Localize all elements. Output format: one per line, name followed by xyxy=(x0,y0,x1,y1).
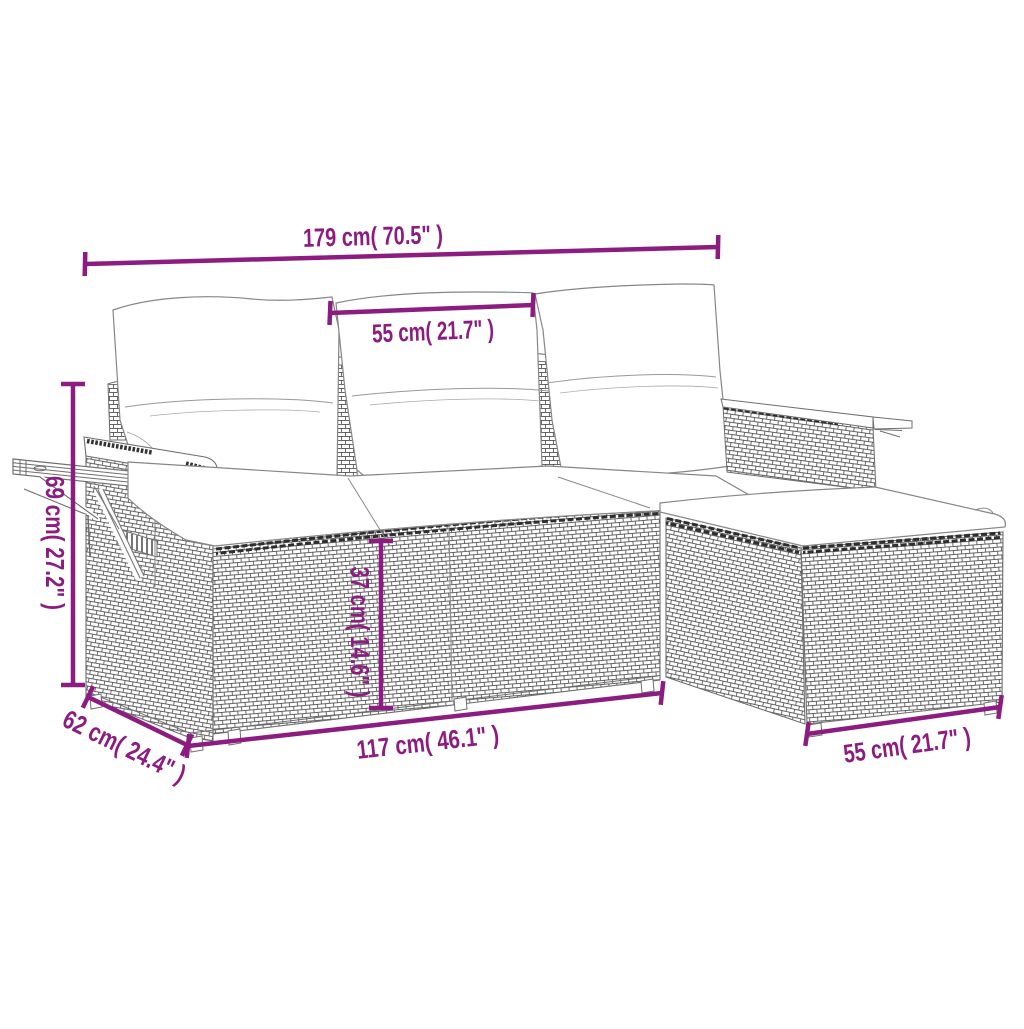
svg-text:55 cm( 21.7" ): 55 cm( 21.7" ) xyxy=(371,314,494,349)
svg-text:179 cm( 70.5" ): 179 cm( 70.5" ) xyxy=(303,219,444,253)
svg-text:37 cm( 14.6" ): 37 cm( 14.6" ) xyxy=(345,567,375,698)
svg-text:69 cm( 27.2" ): 69 cm( 27.2" ) xyxy=(40,476,70,610)
